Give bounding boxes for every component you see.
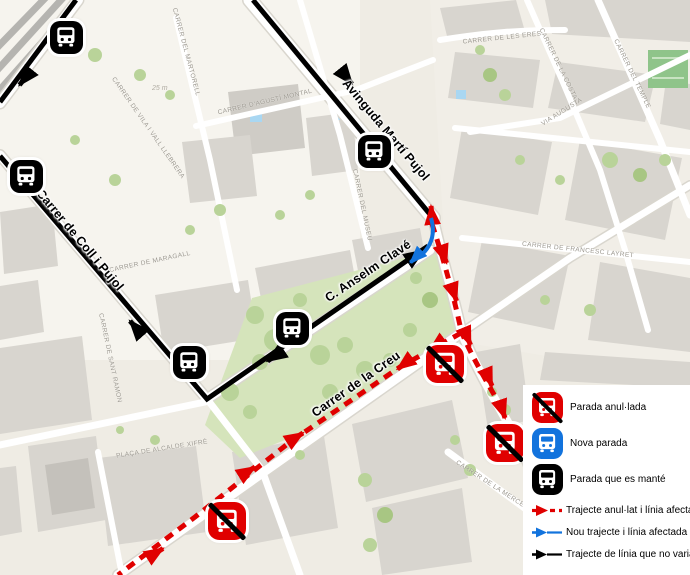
legend-item-new-stop: Nova parada [532, 428, 690, 459]
legend-label: Trajecte anul·lat i línia afectada [566, 505, 690, 516]
bus-icon [212, 506, 242, 536]
kept-stop-icon [358, 135, 391, 168]
legend-label: Trajecte de línia que no varia [566, 549, 690, 560]
kept-stop-icon [173, 346, 206, 379]
kept-stop-icon [532, 464, 563, 495]
unchanged-route-sample-icon [532, 548, 562, 561]
kept-stop-icon [276, 312, 309, 345]
cancelled-stop-icon [426, 345, 464, 383]
detour-map: Avinguda Martí Pujol Carrer de Coll i Pu… [0, 0, 690, 575]
cancelled-stop-icon [532, 392, 563, 423]
cancelled-stop-icon [486, 424, 524, 462]
bus-icon [13, 163, 39, 189]
legend-item-cancelled-stop: Parada anul·lada [532, 392, 690, 423]
kept-stop-icon [50, 21, 83, 54]
legend-item-cancelled-route: Trajecte anul·lat i línia afectada [532, 504, 690, 517]
legend-label: Parada que es manté [570, 474, 666, 485]
bus-icon [535, 431, 559, 455]
bus-icon [535, 395, 559, 419]
bus-icon [535, 467, 559, 491]
legend-item-kept-stop: Parada que es manté [532, 464, 690, 495]
cancelled-stop-icon [208, 502, 246, 540]
new-route-sample-icon [532, 526, 562, 539]
legend-item-new-route: Nou trajecte i línia afectada [532, 526, 690, 539]
bus-icon [430, 349, 460, 379]
bus-icon [279, 315, 305, 341]
legend-label: Parada anul·lada [570, 402, 646, 413]
scale-text: 25 m [152, 85, 168, 92]
cancelled-route-sample-icon [532, 504, 562, 517]
legend-label: Nou trajecte i línia afectada [566, 527, 687, 538]
bus-icon [53, 24, 79, 50]
legend-label: Nova parada [570, 438, 627, 449]
bus-icon [361, 138, 387, 164]
new-stop-icon [532, 428, 563, 459]
bus-icon [490, 428, 520, 458]
legend-panel: Parada anul·lada Nova parada Parada que … [523, 385, 690, 575]
legend-item-unchanged-route: Trajecte de línia que no varia [532, 548, 690, 561]
bus-icon [176, 349, 202, 375]
kept-stop-icon [10, 160, 43, 193]
